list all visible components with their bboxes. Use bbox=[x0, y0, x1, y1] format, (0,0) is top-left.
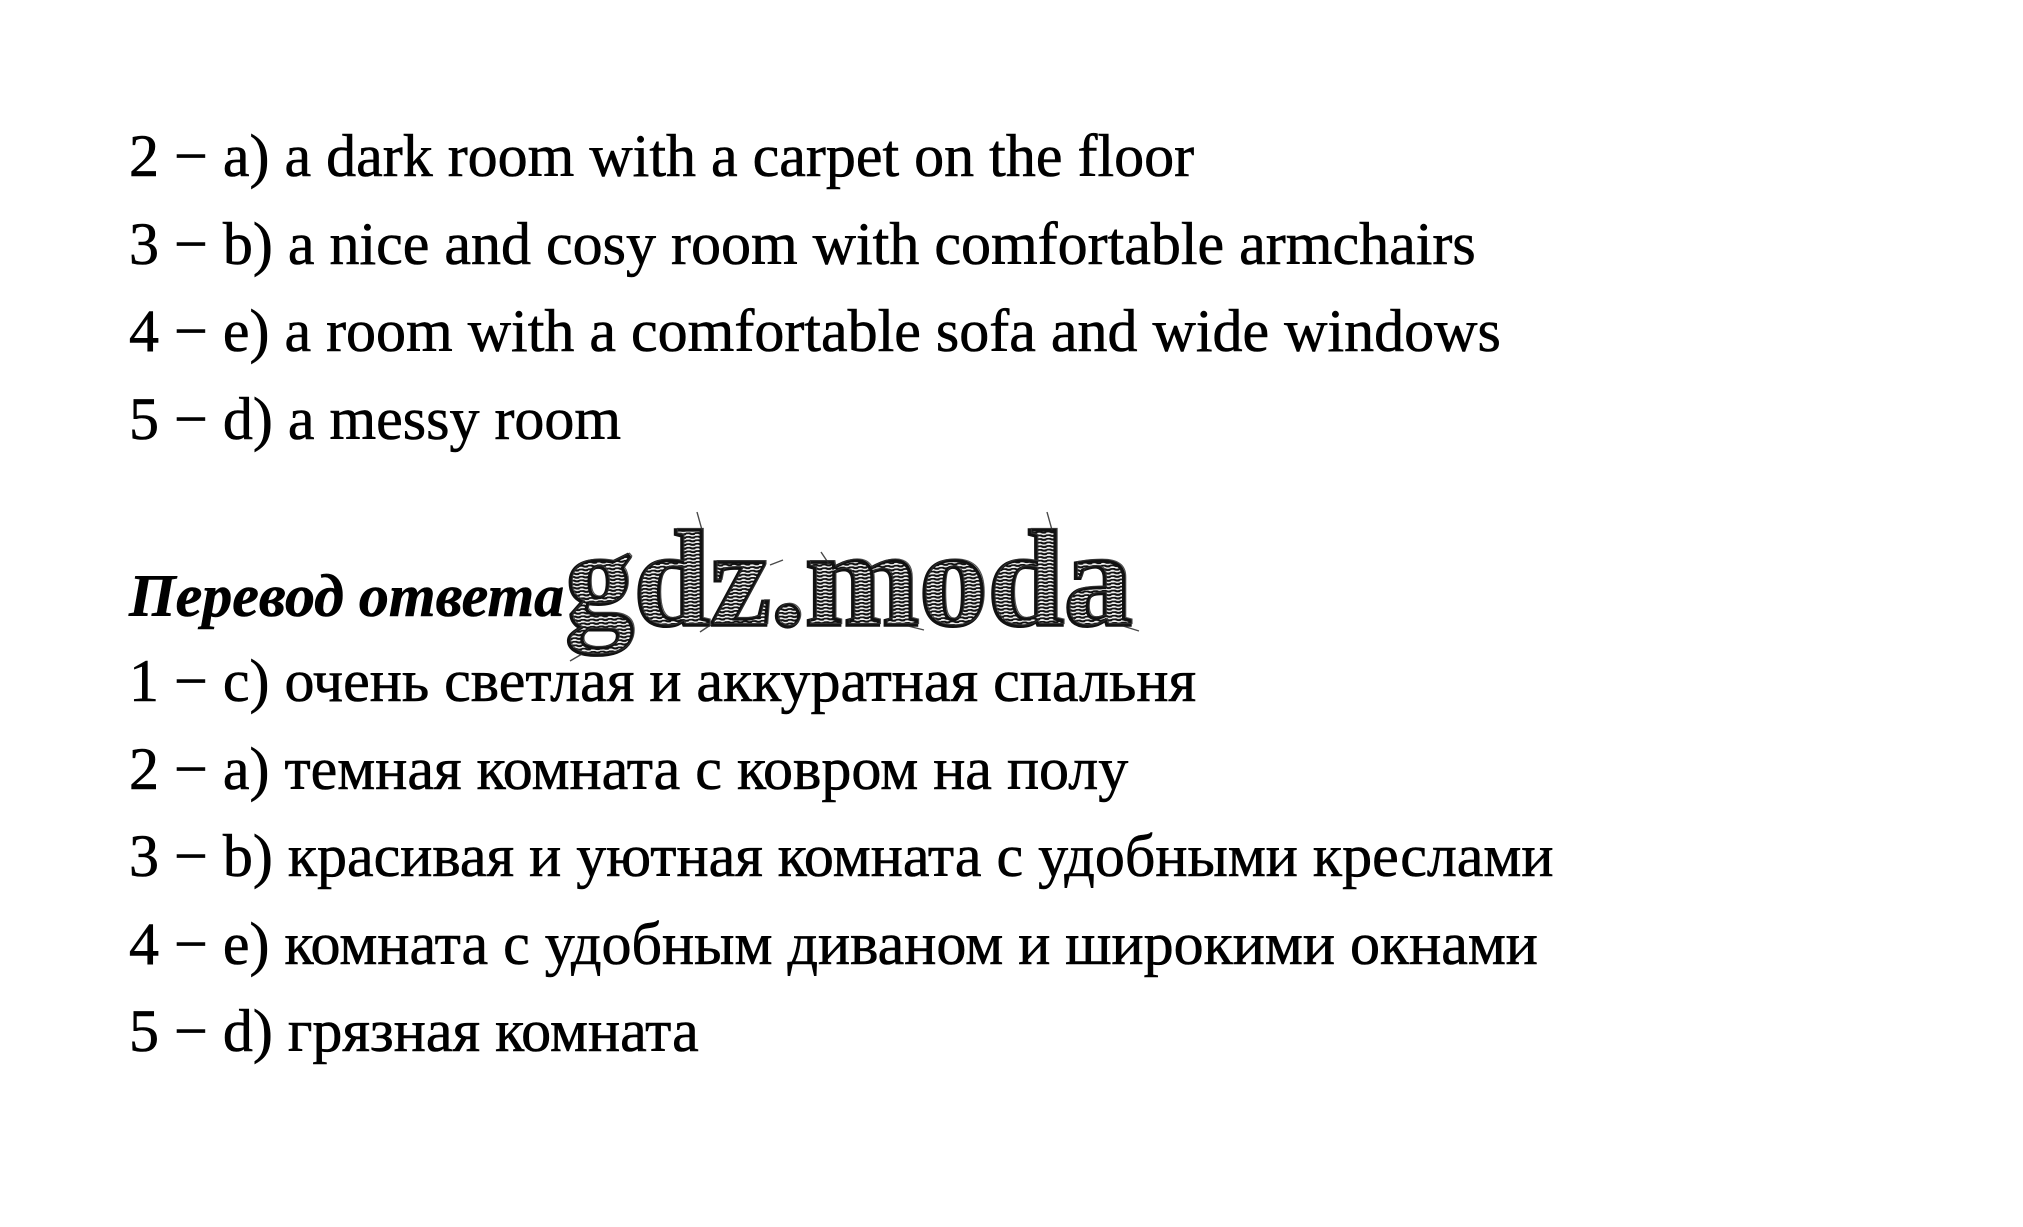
svg-text:gdz.moda: gdz.moda bbox=[567, 502, 1134, 654]
